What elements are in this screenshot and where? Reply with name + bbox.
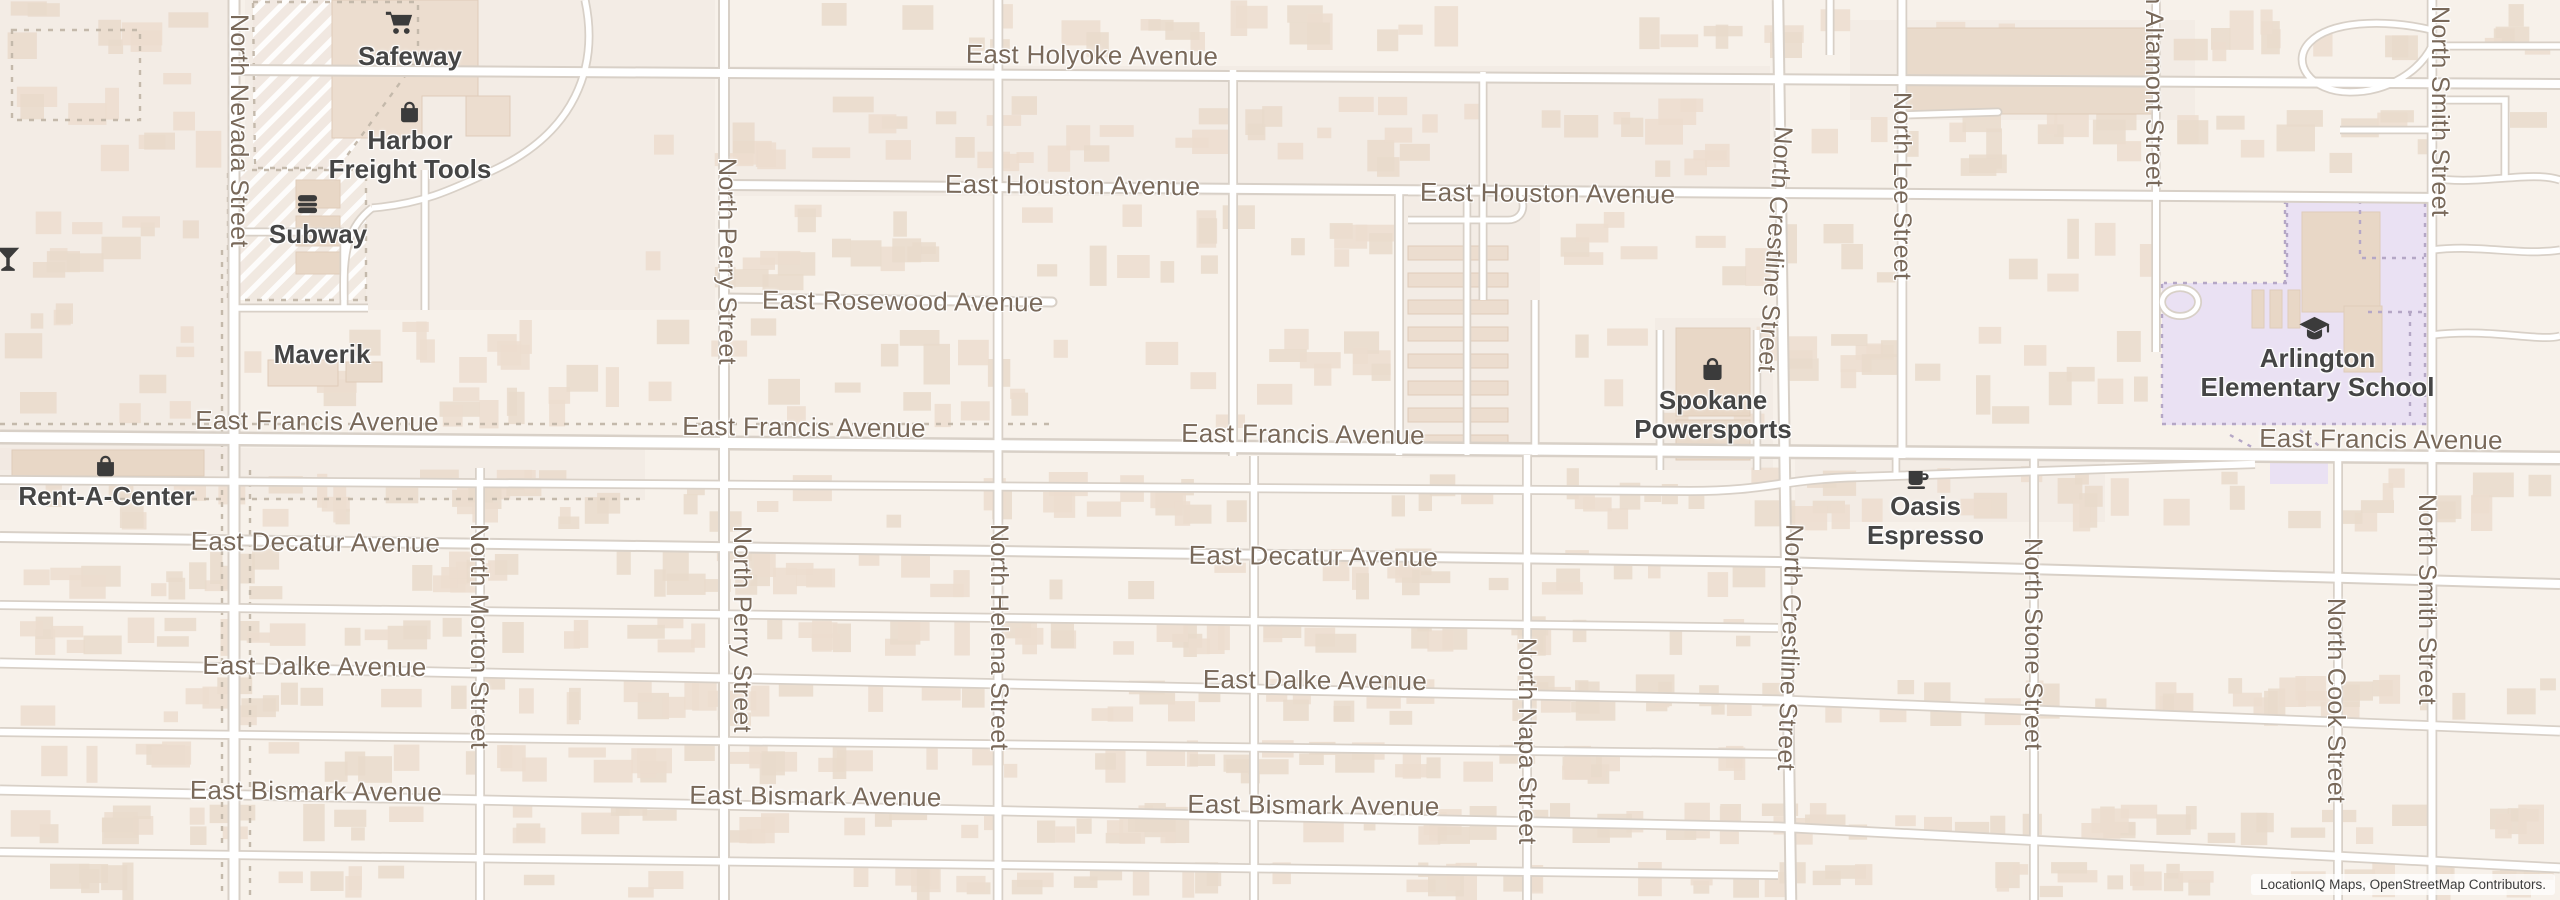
street-label-helena: North Helena Street bbox=[984, 524, 1013, 751]
poi-label-oasis-espresso: Oasis Espresso bbox=[1833, 492, 2018, 549]
street-label-perry-low: North Perry Street bbox=[727, 526, 756, 733]
street-label-francis-2: East Francis Avenue bbox=[674, 411, 934, 444]
street-label-bismark-2: East Bismark Avenue bbox=[688, 780, 943, 813]
poi-label-maverik: Maverik bbox=[262, 340, 382, 369]
street-label-houston-2: East Houston Avenue bbox=[1420, 177, 1675, 210]
graduation-cap-icon bbox=[2298, 312, 2331, 345]
street-label-dalke-1: East Dalke Avenue bbox=[202, 650, 427, 683]
poi-label-spokane-powersports: Spokane Powersports bbox=[1618, 386, 1808, 443]
street-label-stone: North Stone Street bbox=[2018, 538, 2047, 750]
poi-label-rent-a-center: Rent-A-Center bbox=[14, 482, 199, 511]
cocktail-icon bbox=[0, 244, 23, 274]
shopping-bag-icon bbox=[92, 452, 119, 479]
street-label-francis-4: East Francis Avenue bbox=[2256, 423, 2506, 456]
street-label-francis-1: East Francis Avenue bbox=[192, 405, 442, 438]
poi-label-harbor-freight: Harbor Freight Tools bbox=[325, 126, 495, 183]
poi-label-subway: Subway bbox=[258, 220, 378, 249]
street-label-decatur-2: East Decatur Avenue bbox=[1186, 540, 1441, 573]
street-label-lee: North Lee Street bbox=[1887, 92, 1916, 280]
street-label-perry-top: North Perry Street bbox=[712, 158, 741, 365]
poi-label-arlington-elementary: Arlington Elementary School bbox=[2200, 344, 2435, 401]
street-label-dalke-2: East Dalke Avenue bbox=[1200, 664, 1430, 697]
street-label-bismark-3: East Bismark Avenue bbox=[1186, 789, 1441, 822]
street-label-cook: North Cook Street bbox=[2321, 598, 2350, 803]
map-canvas[interactable]: East Holyoke Avenue East Houston Avenue … bbox=[0, 0, 2560, 900]
street-label-smith-top: North Smith Street bbox=[2425, 6, 2454, 217]
street-label-altamont: North Altamont Street bbox=[2139, 0, 2168, 187]
burger-icon bbox=[294, 190, 321, 217]
street-label-morton: North Morton Street bbox=[464, 524, 493, 749]
shopping-bag-icon bbox=[396, 98, 423, 125]
shopping-bag-icon bbox=[1698, 354, 1727, 383]
shopping-cart-icon bbox=[384, 8, 414, 38]
street-label-rosewood: East Rosewood Avenue bbox=[762, 285, 1042, 319]
street-label-napa: North Napa Street bbox=[1512, 638, 1541, 845]
street-label-nevada: North Nevada Street bbox=[224, 14, 253, 248]
street-label-houston-1: East Houston Avenue bbox=[945, 169, 1200, 202]
map-attribution[interactable]: LocationIQ Maps, OpenStreetMap Contribut… bbox=[2251, 874, 2555, 895]
street-label-holyoke: East Holyoke Avenue bbox=[952, 39, 1232, 73]
street-label-smith-low: North Smith Street bbox=[2412, 494, 2441, 705]
poi-label-safeway: Safeway bbox=[340, 42, 480, 71]
street-label-francis-3: East Francis Avenue bbox=[1178, 418, 1428, 451]
coffee-cup-icon bbox=[1904, 464, 1932, 492]
street-label-bismark-1: East Bismark Avenue bbox=[186, 775, 446, 808]
street-label-decatur-1: East Decatur Avenue bbox=[188, 526, 443, 559]
